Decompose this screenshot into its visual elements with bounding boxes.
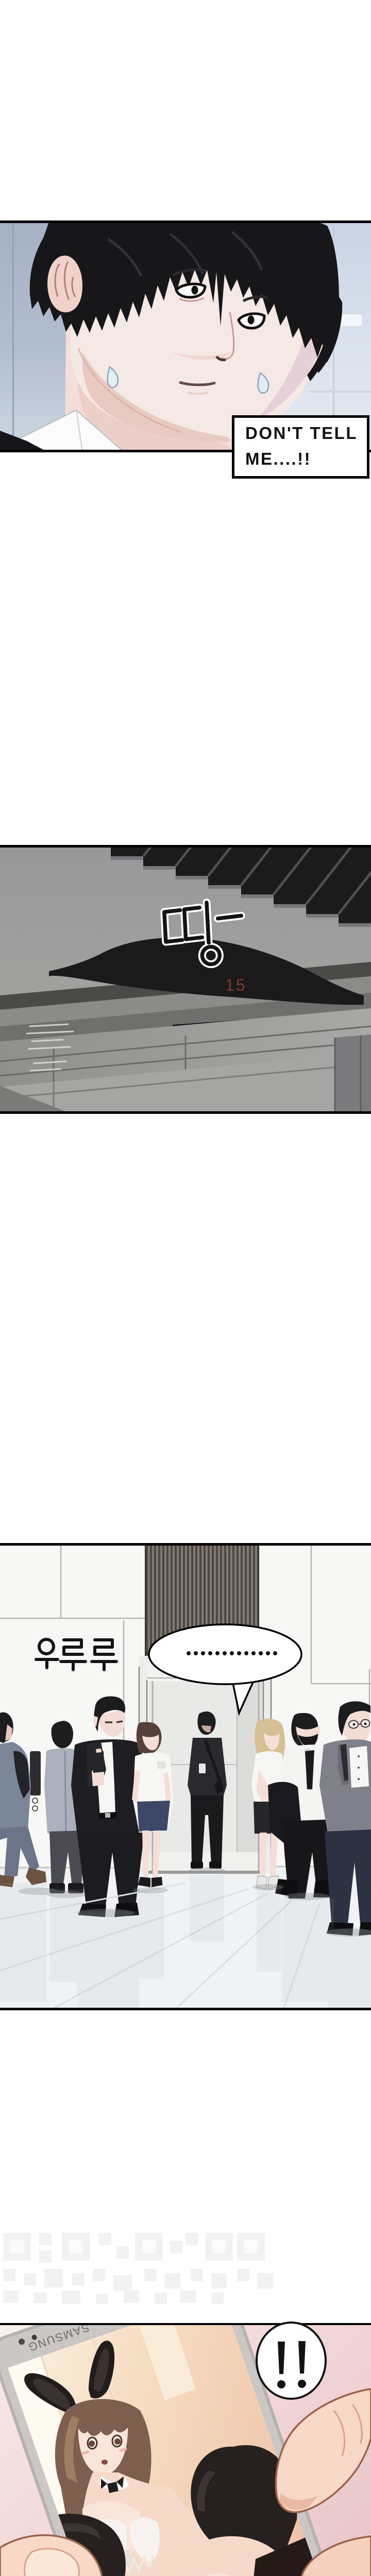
svg-text:15: 15 <box>225 976 247 994</box>
